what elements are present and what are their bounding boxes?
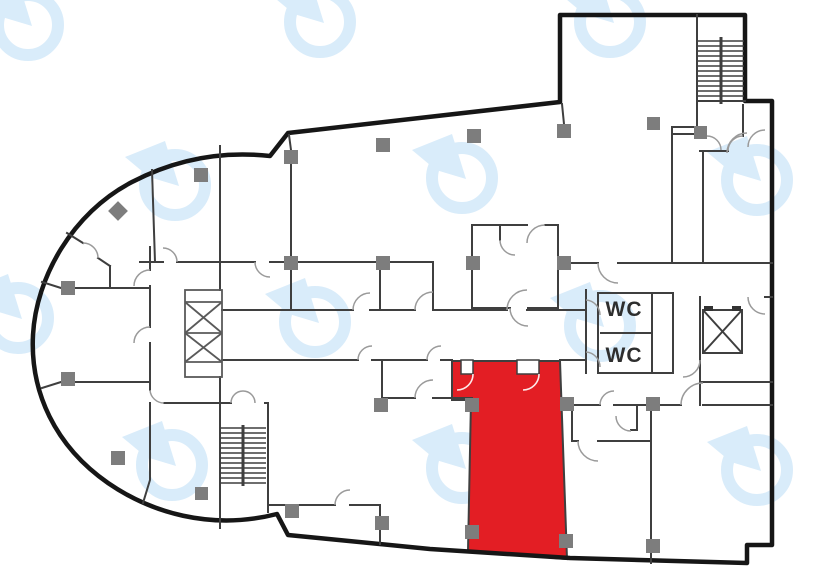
- column-marker-icon: [284, 256, 298, 270]
- watermark-logo: [707, 426, 787, 500]
- elevator-shaft-left: [185, 290, 222, 377]
- watermark-logo: [412, 134, 492, 208]
- wc-room-bottom-label: WC: [606, 344, 643, 367]
- watermark-logo: [122, 421, 202, 495]
- column-marker-icon: [646, 539, 660, 553]
- wc-room-top-label: WC: [606, 298, 643, 321]
- column-marker-icon: [557, 124, 571, 138]
- watermark-logo: [265, 278, 345, 352]
- column-marker-icon: [375, 516, 389, 530]
- column-marker-icon: [557, 256, 571, 270]
- column-marker-icon: [194, 168, 208, 182]
- column-marker-icon: [61, 281, 75, 295]
- column-marker-icon: [647, 117, 660, 130]
- watermark-logo: [560, 0, 640, 52]
- column-marker-icon: [465, 525, 479, 539]
- column-marker-icon: [61, 372, 75, 386]
- column-marker-icon: [285, 504, 299, 518]
- watermark-logo: [0, 0, 58, 55]
- column-marker-icon: [376, 138, 390, 152]
- door-opening: [461, 360, 473, 374]
- column-marker-icon: [374, 398, 388, 412]
- stairs-bottom-left: [220, 425, 266, 486]
- column-marker-icon: [195, 487, 208, 500]
- watermark-logo: [270, 0, 350, 52]
- column-marker-icon: [467, 129, 481, 143]
- watermark-logo: [707, 136, 787, 210]
- column-marker-icon: [646, 397, 660, 411]
- watermark-layer: [0, 0, 787, 500]
- column-marker-icon: [376, 256, 390, 270]
- elevator-shaft-right: [703, 306, 742, 353]
- watermark-logo: [0, 274, 48, 348]
- column-marker-icon: [111, 451, 125, 465]
- column-marker-icon: [465, 398, 479, 412]
- column-marker-icon: [694, 126, 707, 139]
- stairs-top-right: [698, 37, 744, 104]
- column-marker-icon: [559, 534, 573, 548]
- door-opening: [517, 360, 539, 374]
- floor-plan-page: WC WC: [0, 0, 820, 580]
- column-marker-diamond-icon: [108, 201, 128, 221]
- column-marker-icon: [466, 256, 480, 270]
- floor-plan-svg: WC WC: [0, 0, 820, 580]
- column-marker-icon: [560, 397, 574, 411]
- column-marker-icon: [284, 150, 298, 164]
